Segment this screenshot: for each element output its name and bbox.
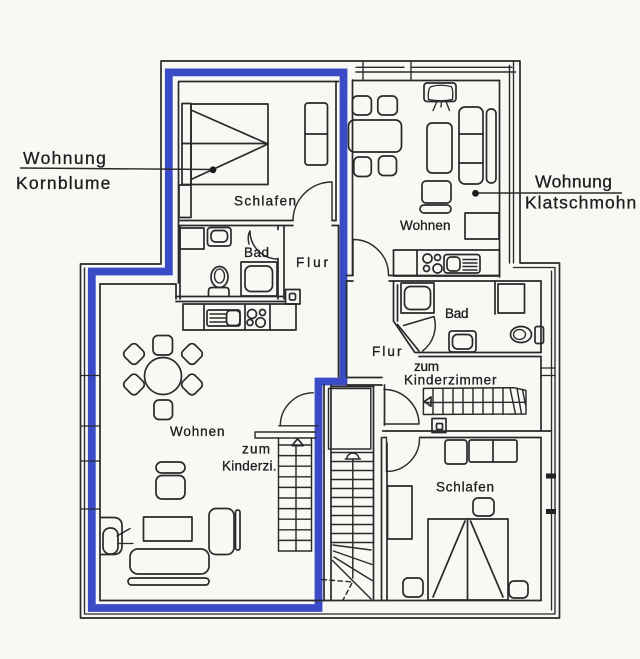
svg-text:Kinderzi.: Kinderzi. <box>222 459 277 474</box>
svg-text:Flur: Flur <box>372 344 403 359</box>
svg-text:Wohnung: Wohnung <box>535 172 614 192</box>
svg-text:Schlafen: Schlafen <box>234 194 298 209</box>
svg-text:Kinderzimmer: Kinderzimmer <box>404 373 497 388</box>
svg-text:Klatschmohn: Klatschmohn <box>525 193 637 213</box>
svg-text:Kornblume: Kornblume <box>16 173 112 193</box>
svg-text:zum: zum <box>242 442 271 457</box>
svg-text:Bad: Bad <box>244 245 271 260</box>
svg-text:Flur: Flur <box>296 255 330 270</box>
svg-text:Wohnen: Wohnen <box>400 218 452 233</box>
svg-text:Schlafen: Schlafen <box>436 480 495 495</box>
svg-text:Wohnen: Wohnen <box>170 424 226 439</box>
svg-text:Bad: Bad <box>445 306 470 321</box>
svg-text:Wohnung: Wohnung <box>23 148 108 168</box>
